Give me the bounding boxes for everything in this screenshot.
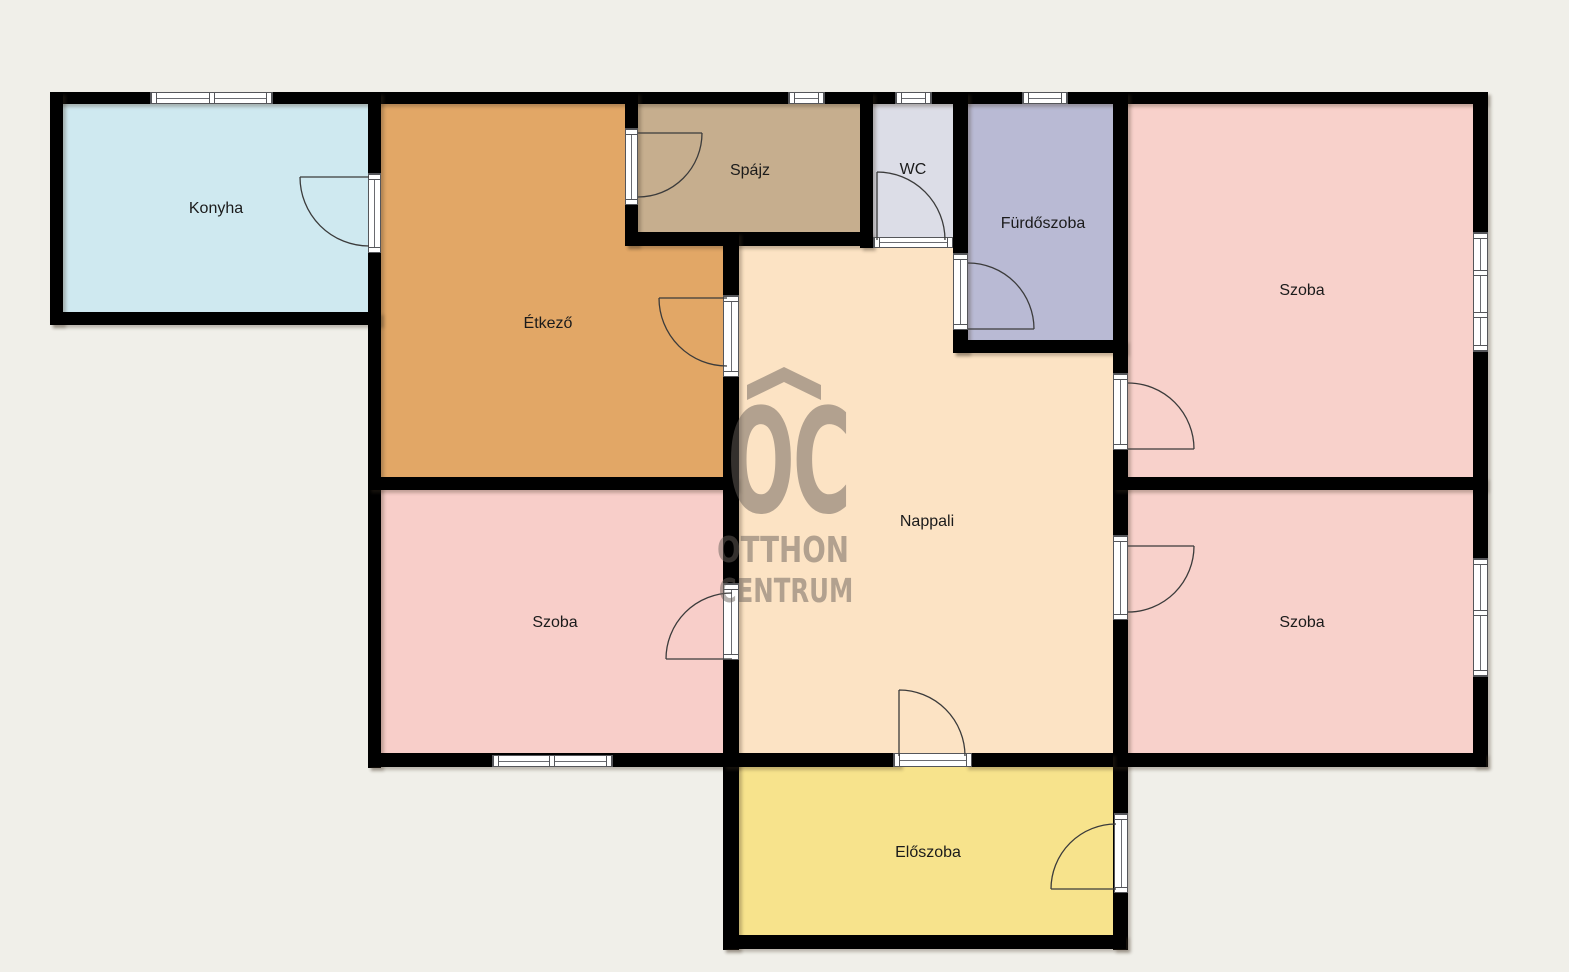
label-wc: WC [900, 161, 927, 179]
label-szoba-also-bal: Szoba [532, 614, 577, 632]
window [788, 92, 825, 104]
label-etkezo: Étkező [524, 315, 573, 333]
door-frame [723, 295, 739, 377]
wall [953, 340, 1126, 353]
door-frame [1113, 535, 1128, 620]
door-frame [1113, 373, 1128, 450]
floor-plan: OC OTTHON CENTRUM Konyha Étkező Spájz WC… [0, 0, 1569, 972]
window [150, 92, 273, 104]
label-eloszoba: Előszoba [895, 844, 961, 862]
door-frame [953, 253, 968, 330]
wall [860, 92, 873, 248]
label-spajz: Spájz [730, 162, 770, 180]
label-konyha: Konyha [189, 200, 243, 218]
door-frame [723, 583, 739, 660]
wall [625, 232, 871, 246]
door-frame [893, 753, 972, 767]
label-szoba-felso: Szoba [1279, 282, 1324, 300]
wall [1113, 753, 1486, 767]
window [492, 755, 613, 767]
label-furdoszoba: Fürdőszoba [1001, 215, 1086, 233]
wall [1113, 477, 1486, 490]
room-etkezo-lower [381, 246, 723, 477]
window [1022, 92, 1068, 104]
window [1473, 232, 1488, 352]
window [895, 92, 932, 104]
wall [965, 753, 1113, 767]
label-nappali: Nappali [900, 513, 954, 531]
window [1473, 558, 1488, 677]
wall [723, 753, 900, 767]
wall [50, 92, 63, 325]
door-frame [873, 237, 953, 248]
wall [368, 477, 737, 490]
wall [50, 312, 381, 325]
door-frame [368, 173, 381, 253]
door-frame [1114, 813, 1128, 893]
label-szoba-also-jobb: Szoba [1279, 614, 1324, 632]
wall [723, 935, 1126, 949]
door-frame [625, 128, 638, 205]
room-nappali-east [739, 353, 1113, 753]
